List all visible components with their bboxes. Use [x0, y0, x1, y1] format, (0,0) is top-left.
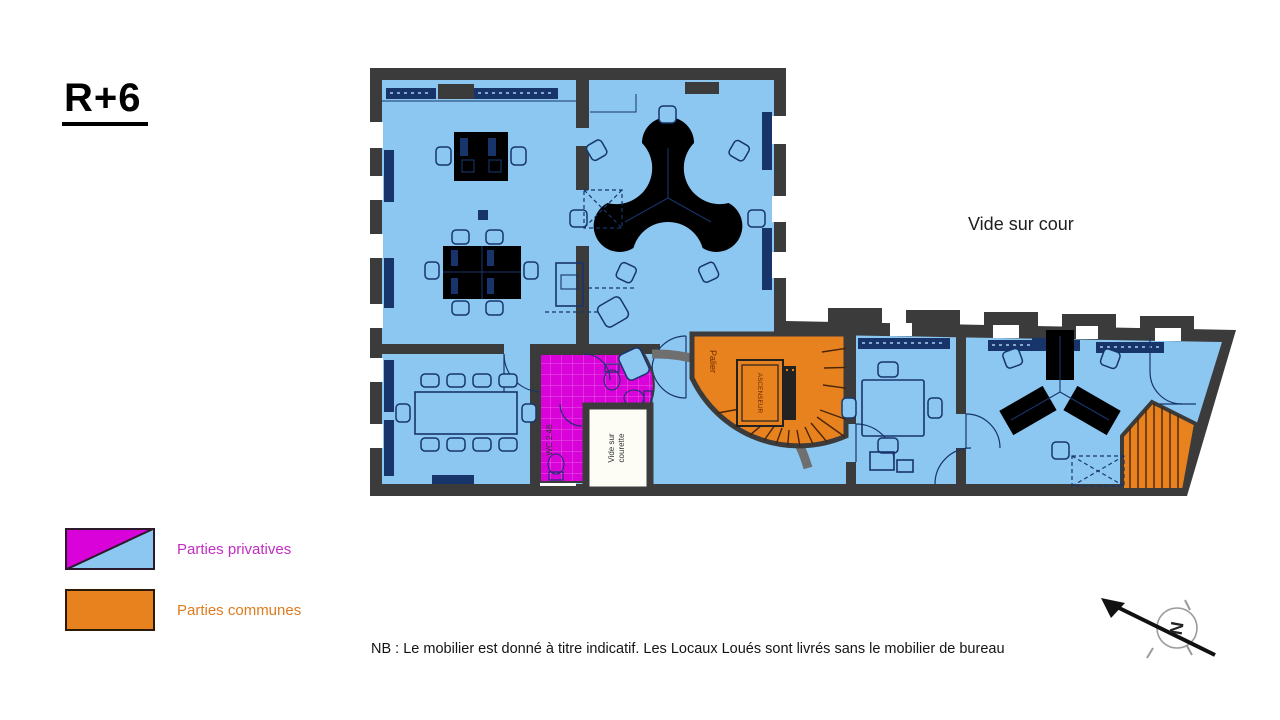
window — [367, 122, 383, 148]
legend-swatch-common — [65, 589, 155, 631]
legend-swatch-private — [65, 528, 155, 570]
palier-label: Palier — [708, 350, 718, 373]
window — [772, 252, 787, 278]
radiator — [432, 475, 474, 484]
legend-row-common: Parties communes — [65, 589, 301, 631]
legend: Parties privatives Parties communes — [65, 528, 301, 650]
vide-courette-label-2: courette — [617, 433, 626, 462]
wc-label: WC 2.46 — [545, 424, 554, 456]
window — [1155, 328, 1181, 341]
furniture-note: NB : Le mobilier est donné à titre indic… — [371, 641, 1005, 657]
north-arrow-compass: N — [1095, 588, 1230, 673]
window — [367, 424, 383, 448]
elevator: ASCENSEUR — [737, 360, 796, 426]
window — [890, 323, 912, 336]
window — [367, 304, 383, 328]
vide-courette-room: Vide sur courette — [586, 406, 650, 490]
legend-label-private: Parties privatives — [177, 541, 291, 558]
wall-unit — [1032, 338, 1046, 347]
vide-courette-label-1: Vide sur — [607, 433, 616, 463]
window — [367, 234, 383, 258]
legend-label-common: Parties communes — [177, 602, 301, 619]
window — [772, 196, 787, 222]
window — [1076, 326, 1098, 339]
legend-row-private: Parties privatives — [65, 528, 301, 570]
window — [772, 116, 787, 144]
north-arrow — [1111, 604, 1215, 655]
elevator-label: ASCENSEUR — [756, 373, 763, 414]
window — [367, 176, 383, 200]
window — [993, 325, 1019, 338]
window — [367, 358, 383, 382]
